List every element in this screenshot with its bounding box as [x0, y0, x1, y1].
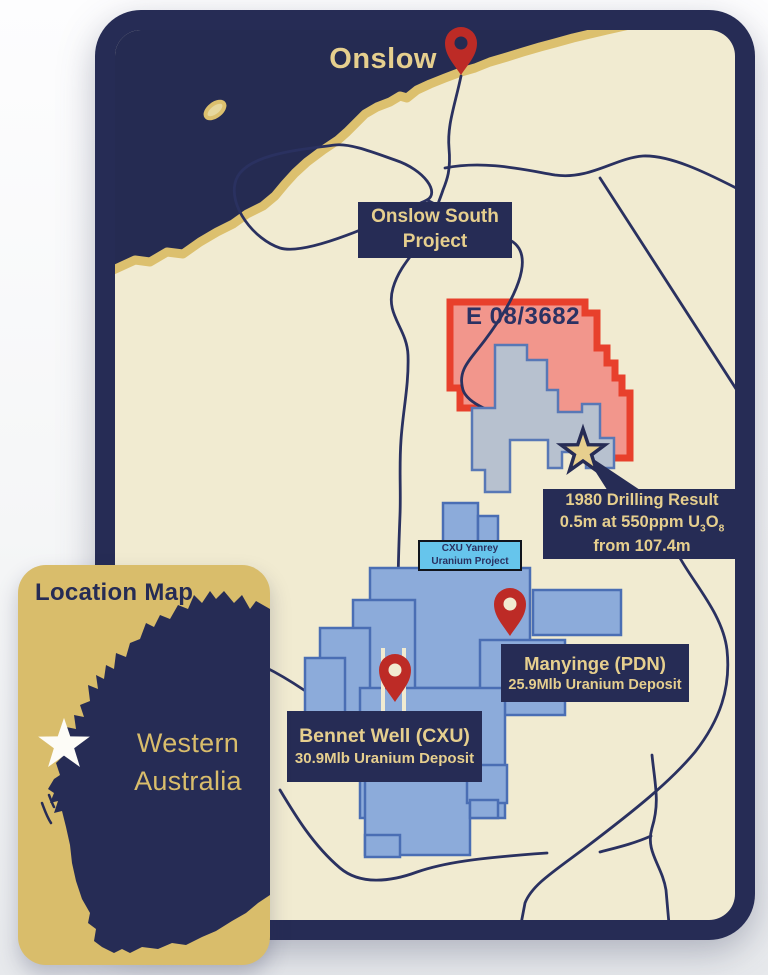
yanrey-line1: CXU Yanrey: [420, 543, 520, 556]
coast-inlet: [42, 803, 51, 823]
manyinge-location-pin-icon: [490, 586, 530, 638]
manyinge-line2: 25.9Mlb Uranium Deposit: [508, 676, 681, 695]
tenement-blue: [443, 503, 478, 543]
manyinge-line1: Manyinge (PDN): [524, 652, 666, 676]
project-title-box: Onslow South Project: [358, 202, 512, 258]
tenement-blue: [478, 516, 498, 543]
yanrey-project-box: CXU Yanrey Uranium Project: [418, 540, 522, 571]
tenement-blue: [470, 800, 498, 818]
town-label-onslow: Onslow: [325, 43, 437, 76]
project-title-line2: Project: [403, 230, 467, 255]
project-title-line1: Onslow South: [371, 205, 499, 230]
drilling-result-line1: 1980 Drilling Result: [565, 490, 718, 512]
state-name-line2: Australia: [106, 763, 270, 801]
drilling-result-box: 1980 Drilling Result 0.5m at 550ppm U3O8…: [543, 489, 741, 559]
state-name-label: Western Australia: [106, 725, 270, 801]
location-map-inset: Location Map Western Australia: [18, 565, 270, 965]
tenement-blue: [533, 590, 621, 635]
drilling-result-line3: from 107.4m: [593, 536, 690, 558]
bennet-line2: 30.9Mlb Uranium Deposit: [295, 749, 474, 769]
state-name-line1: Western: [106, 725, 270, 763]
project-location-map: Onslow Onslow South Project E 08/3682 19…: [0, 0, 768, 975]
tenement-id-label: E 08/3682: [466, 303, 580, 331]
tenement-blue: [365, 835, 400, 857]
bennet-line1: Bennet Well (CXU): [299, 724, 470, 749]
onslow-location-pin-icon: [441, 25, 481, 77]
bennet-deposit-box: Bennet Well (CXU) 30.9Mlb Uranium Deposi…: [287, 711, 482, 782]
yanrey-line2: Uranium Project: [420, 556, 520, 569]
bennet-location-pin-icon: [375, 652, 415, 704]
drilling-result-line2: 0.5m at 550ppm U3O8: [560, 512, 725, 536]
manyinge-deposit-box: Manyinge (PDN) 25.9Mlb Uranium Deposit: [501, 644, 689, 702]
inset-title: Location Map: [35, 579, 193, 607]
